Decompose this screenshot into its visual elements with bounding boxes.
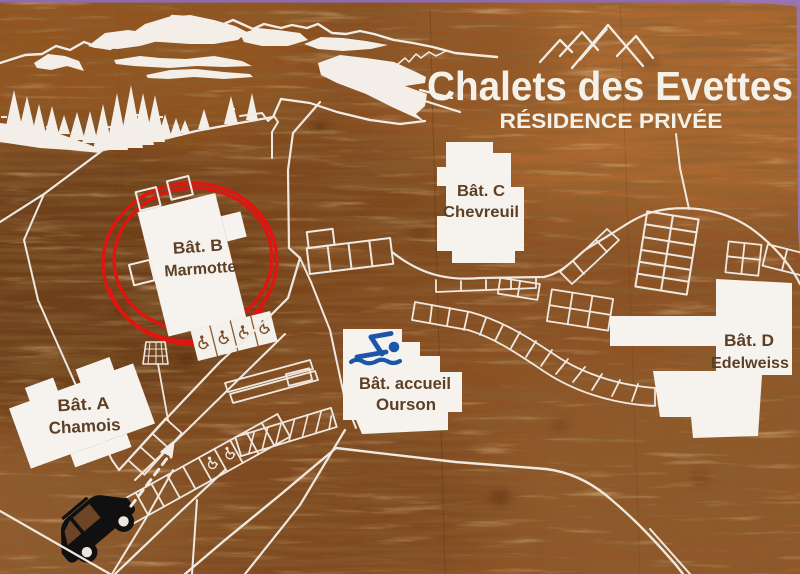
svg-text:Bât. accueil: Bât. accueil bbox=[359, 375, 451, 393]
svg-text:Edelweiss: Edelweiss bbox=[711, 355, 789, 372]
svg-text:RÉSIDENCE PRIVÉE: RÉSIDENCE PRIVÉE bbox=[500, 110, 723, 133]
svg-text:Chalets des Evettes: Chalets des Evettes bbox=[427, 63, 793, 109]
svg-text:Ourson: Ourson bbox=[376, 396, 436, 414]
svg-text:Bât. B: Bât. B bbox=[172, 236, 223, 257]
svg-text:Bât. A: Bât. A bbox=[57, 394, 110, 416]
svg-text:Bât. C: Bât. C bbox=[457, 183, 505, 200]
svg-text:Chamois: Chamois bbox=[48, 415, 121, 438]
svg-text:Chevreuil: Chevreuil bbox=[443, 204, 519, 221]
svg-text:Bât. D: Bât. D bbox=[724, 332, 774, 350]
